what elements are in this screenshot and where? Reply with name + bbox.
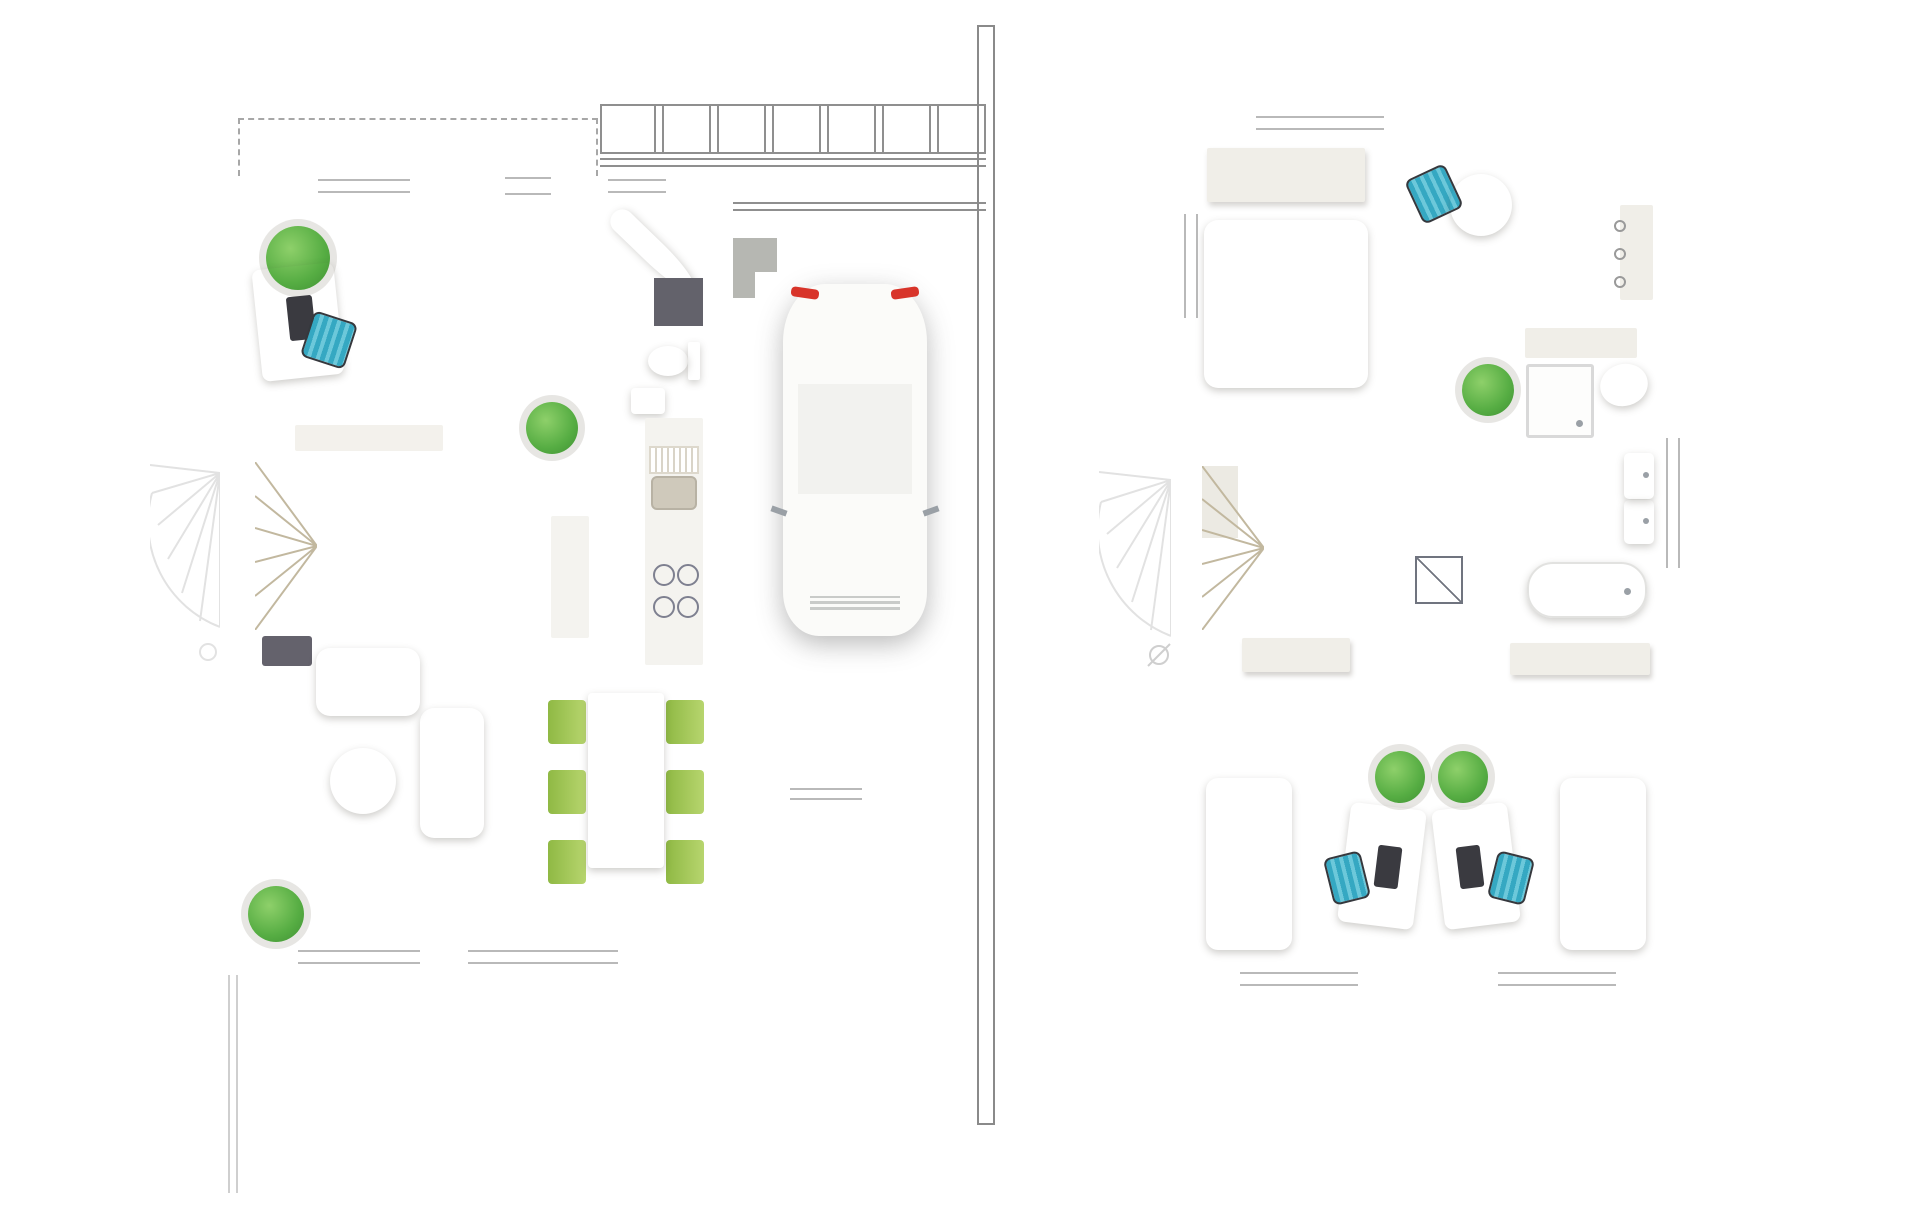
window	[1184, 214, 1198, 318]
scale-segments	[1318, 1100, 1684, 1118]
window	[1240, 972, 1358, 986]
sink-icon	[1624, 500, 1654, 544]
wall	[1373, 938, 1485, 968]
window	[1666, 438, 1680, 568]
floorplan-canvas	[0, 0, 1920, 1224]
laptop-icon	[1456, 845, 1485, 890]
wall	[1202, 626, 1352, 642]
scale-line	[1318, 1078, 1684, 1081]
shower-icon	[1526, 364, 1594, 438]
bed-duvet	[1212, 786, 1286, 898]
wardrobe	[1242, 638, 1350, 672]
hanger-hook-icon	[1614, 220, 1626, 232]
faucet-icon	[1643, 518, 1649, 524]
neighbor-stair-outline	[1099, 470, 1175, 642]
laptop-icon	[1374, 845, 1403, 890]
roof-outline	[1437, 84, 1537, 114]
wall	[1503, 362, 1523, 490]
bed-pillow	[1207, 238, 1249, 290]
wardrobe	[1207, 148, 1365, 202]
bathtub-drain-icon	[1624, 588, 1631, 595]
wall	[1202, 340, 1413, 362]
wall	[1663, 173, 1685, 990]
column-icon	[1466, 432, 1486, 452]
neighbor-stair-fan-icon	[1099, 470, 1171, 638]
hanger-hook-icon	[1614, 276, 1626, 288]
wall	[1490, 626, 1663, 642]
bed-pillow	[1220, 893, 1276, 940]
neighbor-outline	[1150, 147, 1176, 462]
faucet-icon	[1643, 472, 1649, 478]
stair-winder-fan-icon	[1202, 466, 1264, 630]
bed-pillow	[1576, 893, 1632, 940]
window	[1498, 972, 1616, 986]
wall	[1503, 134, 1523, 255]
skylight-symbol	[1415, 556, 1463, 604]
window	[1256, 116, 1384, 130]
bed-duvet	[1566, 786, 1640, 898]
staircase-upper	[1202, 466, 1382, 630]
sink-icon	[1624, 453, 1654, 499]
stair-spine-wall	[1260, 540, 1382, 556]
hanger-hook-icon	[1614, 248, 1626, 260]
bathtub-icon	[1527, 562, 1647, 618]
column-icon	[1210, 642, 1236, 668]
wall	[1508, 173, 1685, 203]
diameter-symbol-icon	[1145, 642, 1173, 668]
wall	[1408, 626, 1428, 968]
scale-bar	[1318, 1032, 1684, 1124]
wall	[1523, 340, 1663, 360]
plant-icon	[1438, 751, 1488, 803]
wardrobe	[1510, 643, 1650, 675]
wall	[1503, 310, 1523, 362]
shower-drain-icon	[1576, 420, 1583, 427]
